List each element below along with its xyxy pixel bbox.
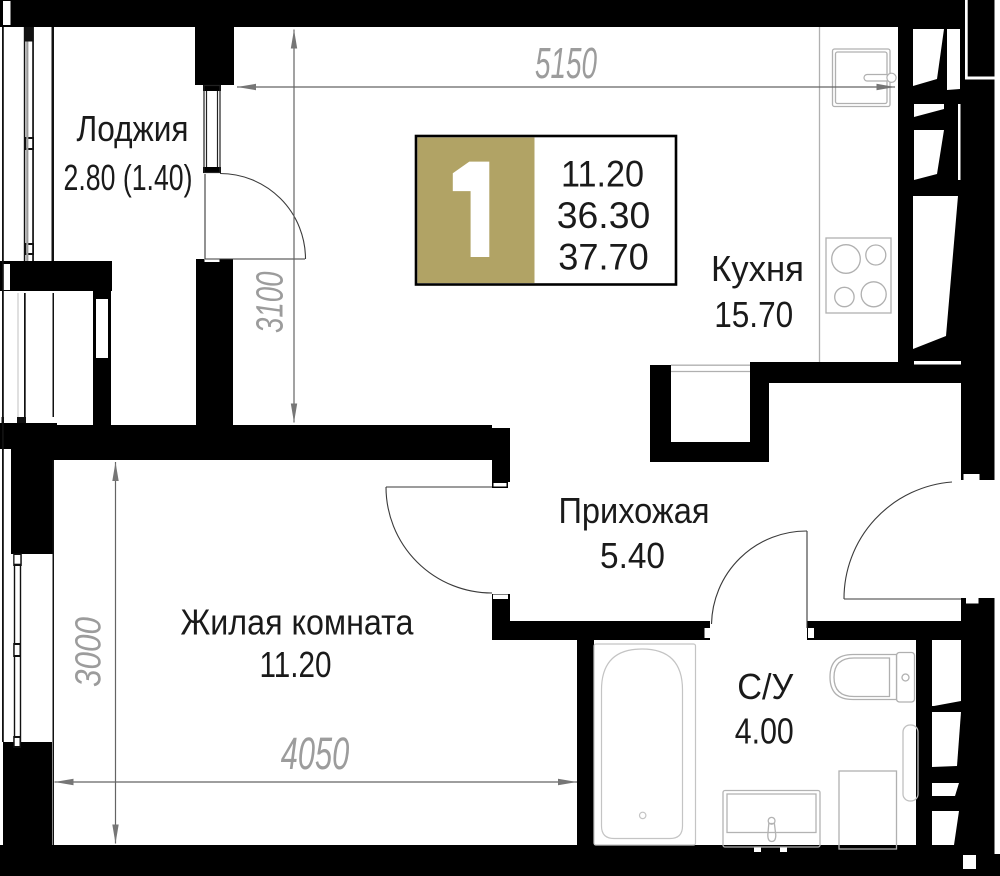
svg-text:Жилая комната: Жилая комната: [181, 602, 415, 643]
svg-text:11.20: 11.20: [561, 154, 644, 195]
svg-text:4050: 4050: [281, 728, 350, 779]
svg-text:Кухня: Кухня: [711, 248, 804, 289]
svg-text:11.20: 11.20: [260, 644, 332, 685]
svg-text:3000: 3000: [68, 617, 109, 687]
svg-text:36.30: 36.30: [557, 195, 651, 236]
svg-text:15.70: 15.70: [714, 294, 793, 335]
svg-text:С/У: С/У: [737, 666, 794, 707]
svg-text:2.80 (1.40): 2.80 (1.40): [64, 157, 193, 198]
svg-text:3100: 3100: [250, 271, 292, 333]
svg-text:Лоджия: Лоджия: [77, 108, 189, 149]
svg-text:5.40: 5.40: [600, 535, 665, 576]
svg-text:5150: 5150: [535, 39, 597, 88]
svg-text:37.70: 37.70: [558, 236, 649, 277]
svg-text:Прихожая: Прихожая: [559, 490, 710, 531]
svg-text:4.00: 4.00: [735, 711, 794, 752]
